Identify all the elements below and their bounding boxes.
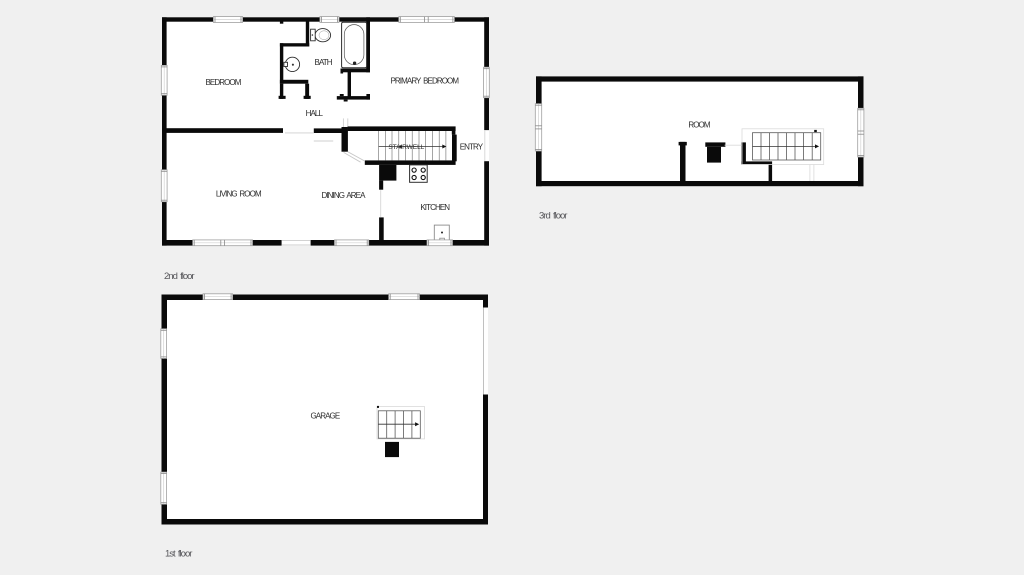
svg-text:2nd floor: 2nd floor (164, 271, 194, 282)
svg-text:3rd floor: 3rd floor (539, 210, 567, 221)
svg-text:LIVING ROOM: LIVING ROOM (216, 189, 262, 198)
svg-text:KITCHEN: KITCHEN (420, 203, 450, 212)
svg-text:ROOM: ROOM (688, 121, 711, 130)
svg-text:1st floor: 1st floor (165, 549, 192, 560)
svg-text:PRIMARY BEDROOM: PRIMARY BEDROOM (390, 77, 459, 86)
svg-text:BEDROOM: BEDROOM (205, 78, 241, 87)
svg-text:STAIRWELL: STAIRWELL (388, 144, 424, 151)
svg-text:ENTRY: ENTRY (460, 142, 484, 151)
svg-text:HALL: HALL (306, 109, 324, 118)
svg-text:BATH: BATH (315, 58, 333, 67)
svg-text:DINING AREA: DINING AREA (321, 191, 366, 200)
svg-text:GARAGE: GARAGE (310, 412, 339, 421)
